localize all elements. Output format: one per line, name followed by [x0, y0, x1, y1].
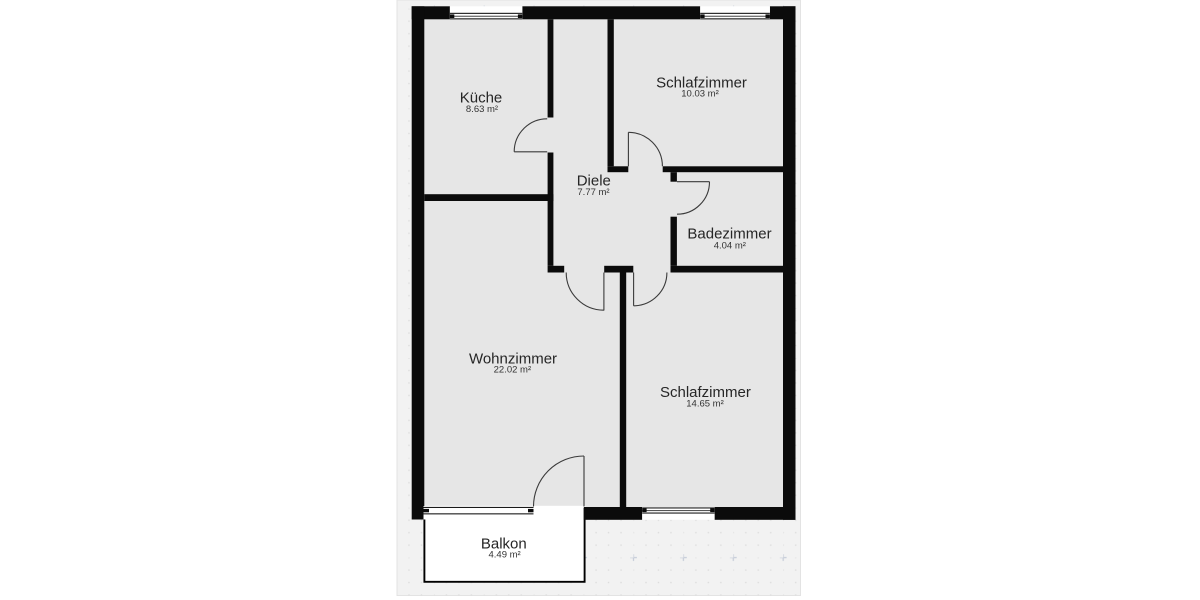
svg-text:4.04 m²: 4.04 m² [714, 241, 746, 252]
svg-text:22.02 m²: 22.02 m² [494, 365, 532, 376]
svg-text:7.77 m²: 7.77 m² [577, 187, 609, 198]
svg-text:4.49 m²: 4.49 m² [488, 550, 520, 561]
svg-text:10.03 m²: 10.03 m² [681, 89, 719, 100]
svg-text:8.63 m²: 8.63 m² [466, 104, 498, 115]
svg-text:14.65 m²: 14.65 m² [686, 399, 724, 410]
